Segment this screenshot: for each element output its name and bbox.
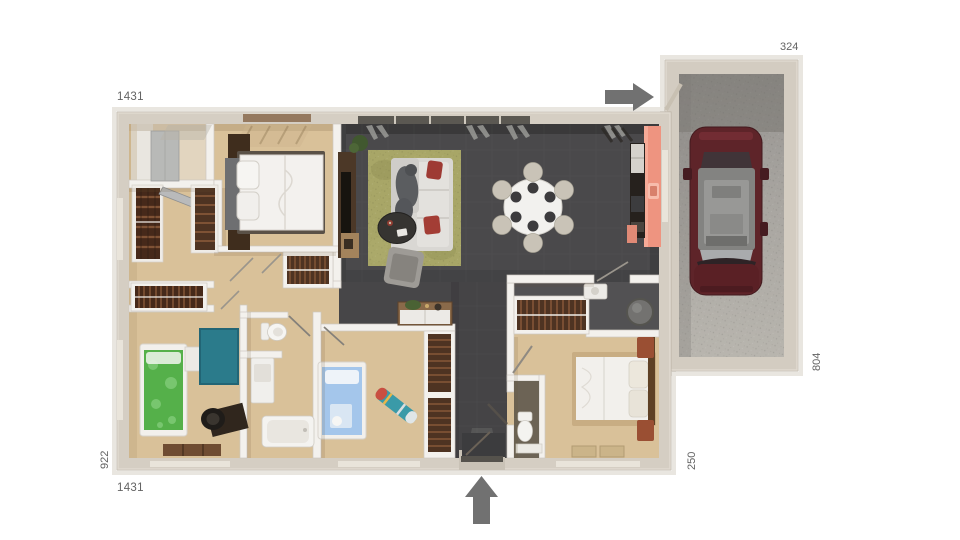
svg-text:250: 250 — [686, 452, 698, 470]
svg-text:324: 324 — [780, 41, 798, 53]
svg-text:1431: 1431 — [117, 482, 144, 494]
svg-text:1431: 1431 — [117, 91, 144, 103]
svg-text:922: 922 — [99, 451, 111, 469]
svg-text:804: 804 — [811, 353, 823, 371]
